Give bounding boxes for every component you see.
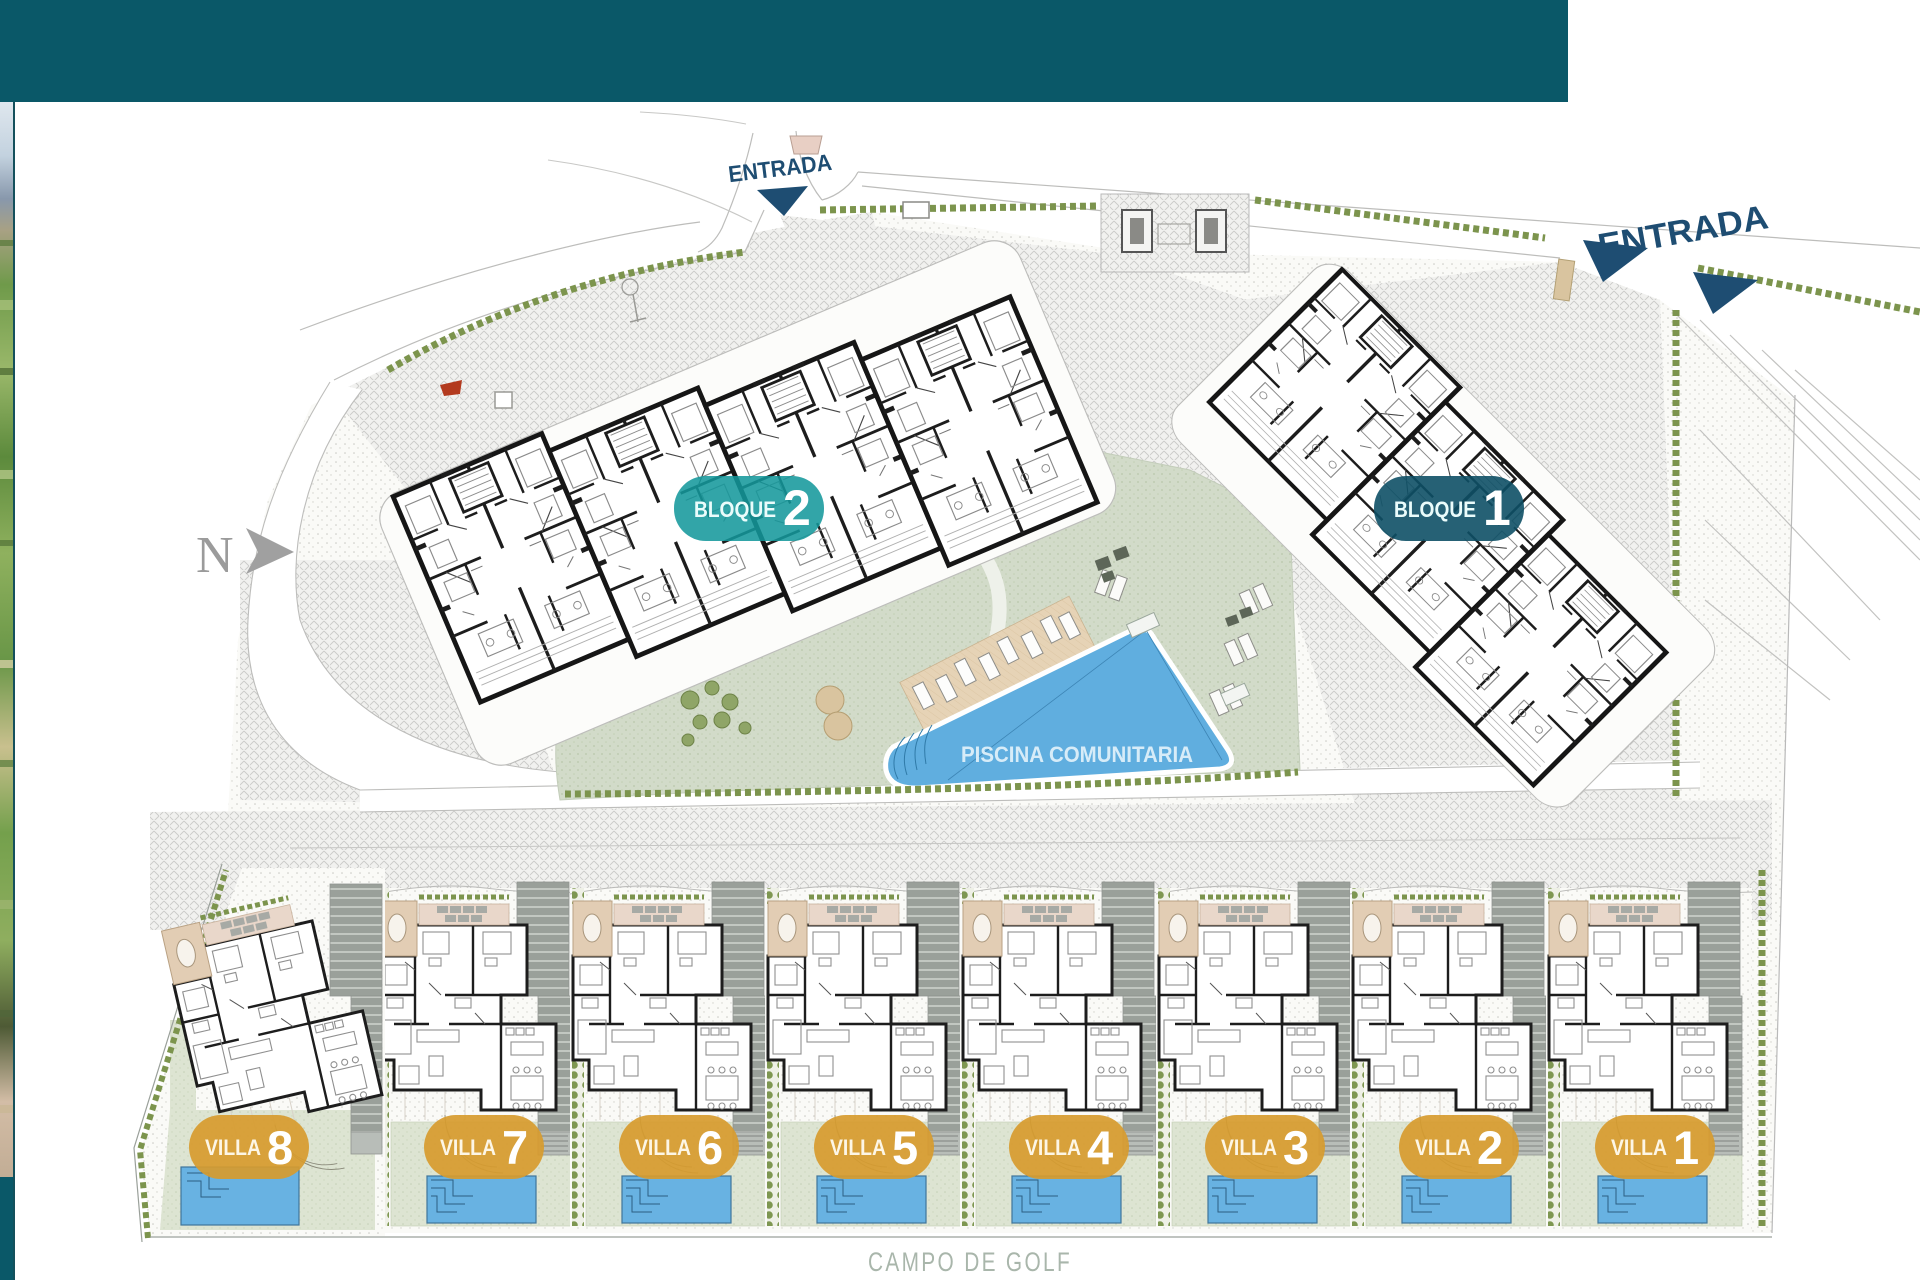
svg-text:BLOQUE: BLOQUE	[1394, 497, 1476, 522]
svg-text:VILLA: VILLA	[1415, 1135, 1471, 1160]
svg-text:VILLA: VILLA	[1221, 1135, 1277, 1160]
svg-text:2: 2	[783, 480, 811, 536]
svg-text:VILLA: VILLA	[635, 1135, 691, 1160]
svg-text:CAMPO DE GOLF: CAMPO DE GOLF	[868, 1247, 1072, 1277]
svg-text:VILLA: VILLA	[1611, 1135, 1667, 1160]
svg-text:VILLA: VILLA	[830, 1135, 886, 1160]
svg-text:BLOQUE: BLOQUE	[694, 497, 776, 522]
svg-text:1: 1	[1483, 480, 1511, 536]
svg-text:PISCINA COMUNITARIA: PISCINA COMUNITARIA	[961, 742, 1193, 767]
svg-text:VILLA: VILLA	[1025, 1135, 1081, 1160]
svg-text:3: 3	[1283, 1121, 1309, 1174]
svg-text:6: 6	[697, 1121, 723, 1174]
svg-text:VILLA: VILLA	[440, 1135, 496, 1160]
svg-text:VILLA: VILLA	[205, 1135, 261, 1160]
svg-text:N: N	[196, 527, 234, 584]
svg-text:1: 1	[1673, 1121, 1699, 1174]
svg-text:7: 7	[502, 1121, 528, 1174]
svg-text:2: 2	[1477, 1121, 1503, 1174]
svg-text:8: 8	[267, 1121, 293, 1174]
svg-text:4: 4	[1087, 1121, 1113, 1174]
svg-text:5: 5	[892, 1121, 918, 1174]
